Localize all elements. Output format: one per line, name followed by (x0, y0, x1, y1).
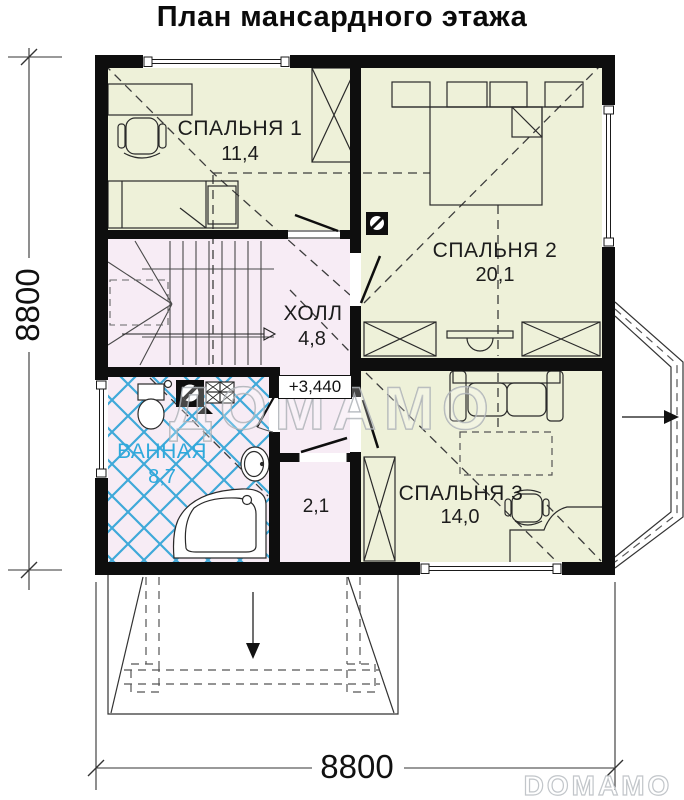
window-bathroom-left (95, 380, 108, 478)
porch (108, 575, 398, 714)
room-area-bedroom2: 20,1 (476, 264, 515, 287)
floor-plan-canvas: ДОМАМО DOMAMO План мансардного этажа СПА… (0, 0, 684, 800)
window-bedroom1-top (143, 55, 290, 68)
window-bedroom2-right (602, 105, 615, 247)
room-label-bedroom2: СПАЛЬНЯ 2 (433, 239, 558, 263)
room-area-bathroom: 8,7 (148, 466, 176, 489)
chimney-icon (366, 212, 388, 235)
window-bedroom3-bottom (420, 562, 562, 575)
room-area-bedroom3: 14,0 (441, 506, 480, 529)
room-area-bedroom1: 11,4 (221, 143, 258, 166)
down-arrow-icon (246, 592, 260, 659)
room-label-bedroom3: СПАЛЬНЯ 3 (399, 482, 524, 506)
dimension-bottom-value: 8800 (320, 748, 393, 786)
room-label-bedroom1: СПАЛЬНЯ 1 (178, 117, 303, 141)
room-area-closet: 2,1 (303, 496, 329, 518)
room-label-hall: ХОЛЛ (284, 302, 343, 326)
bay-roof (615, 302, 683, 568)
page-title: План мансардного этажа (157, 1, 527, 34)
watermark-corner: DOMAMO (524, 770, 673, 800)
sink-icon (241, 447, 269, 481)
floor-plan-drawing: ДОМАМО DOMAMO (0, 0, 684, 800)
room-bedroom2 (361, 68, 602, 358)
room-area-hall: 4,8 (298, 328, 326, 351)
level-mark: +3,440 (278, 375, 352, 399)
toilet-icon (138, 384, 164, 429)
room-label-bathroom: ВАННАЯ (117, 440, 207, 464)
dimension-left-value: 8800 (9, 268, 47, 341)
